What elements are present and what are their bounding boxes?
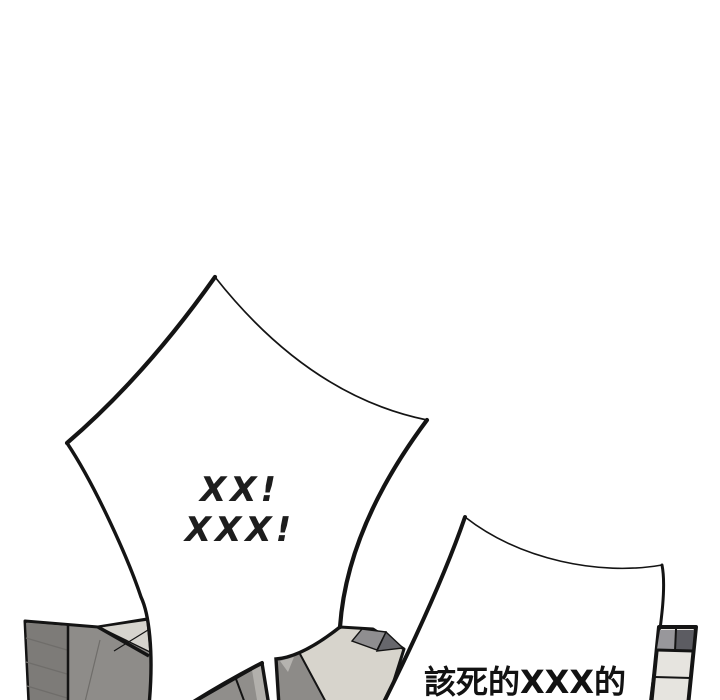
shout-bubble-text-line2: XXX! bbox=[130, 510, 350, 550]
window-mullion-horizontal bbox=[657, 650, 693, 651]
comic-panel-canvas bbox=[0, 0, 720, 700]
shout-bubble-text-line1: XX! bbox=[130, 470, 350, 510]
comic-page: XX! XXX! 該死的XXX的 bbox=[0, 0, 720, 700]
window-art bbox=[651, 627, 696, 700]
window-mullion-vertical bbox=[675, 629, 676, 651]
window-mullion-horizontal-2 bbox=[655, 677, 691, 678]
window-pane-dark bbox=[674, 630, 694, 651]
window-pane-gray bbox=[657, 630, 676, 651]
left-wall-art bbox=[25, 619, 153, 700]
curse-bubble-text: 該死的XXX的 bbox=[424, 664, 626, 700]
wall-dark-column bbox=[26, 623, 68, 700]
shout-bubble-text: XX! XXX! bbox=[130, 470, 350, 550]
